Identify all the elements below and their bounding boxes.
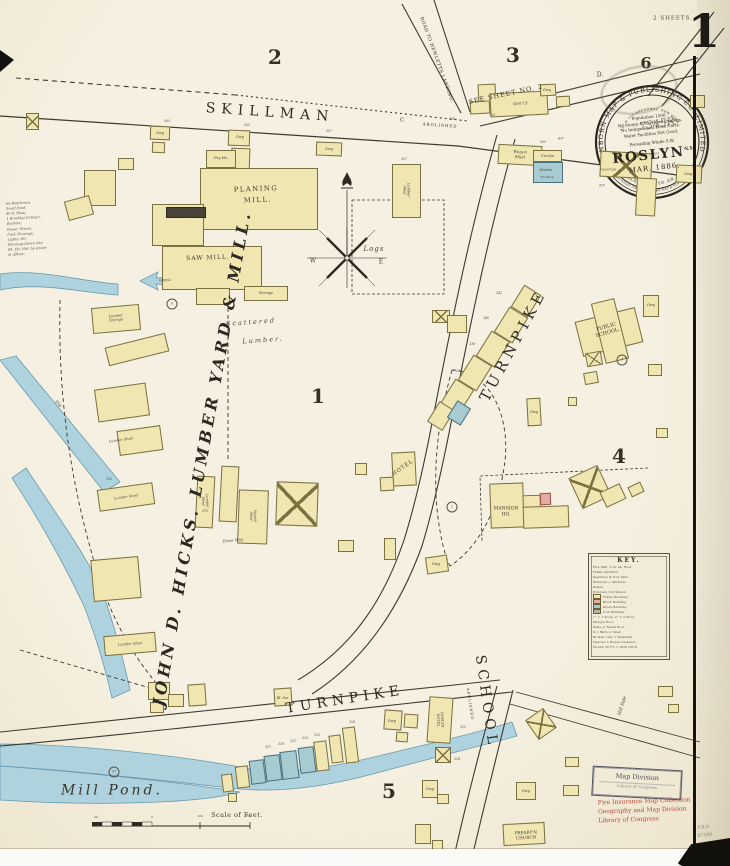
key-title: KEY. bbox=[593, 557, 665, 564]
map-label: Tin Shop bbox=[540, 176, 554, 180]
map-label: 336 bbox=[456, 370, 462, 374]
map-label: HOTEL bbox=[391, 458, 415, 477]
map-label: 321 bbox=[290, 740, 296, 744]
map-label: PLANING bbox=[234, 184, 279, 194]
key-row-text: Figures = House Numbers bbox=[593, 640, 636, 644]
map-label: 150 bbox=[245, 815, 251, 819]
map-label: 319 bbox=[278, 743, 284, 747]
map-label: Lumber Storage bbox=[109, 313, 124, 323]
map-label: Wagon Shed bbox=[513, 150, 527, 160]
lot-number: 4 bbox=[617, 355, 628, 366]
street-label: ABOLISHED bbox=[466, 688, 475, 720]
map-label: Wagon Shed bbox=[249, 510, 258, 522]
key-color-chip bbox=[593, 609, 601, 614]
map-label: Mill Pond. bbox=[61, 783, 163, 800]
street-label: SKILLMAN bbox=[205, 100, 335, 126]
map-label: Dwg bbox=[522, 789, 530, 793]
section-number: 1 bbox=[311, 384, 325, 408]
map-label: Lumber Shed bbox=[200, 494, 209, 508]
paper-right-edge bbox=[697, 0, 730, 866]
key-row-text: Shingle Roof bbox=[593, 620, 614, 624]
section-number: 4 bbox=[612, 444, 626, 468]
map-label: Bl. Sm. bbox=[277, 696, 289, 700]
map-label: 323 bbox=[302, 737, 308, 741]
stamp-center-text: Population 1500.No Steam & No Hand Engin… bbox=[603, 109, 701, 176]
map-label: 310 bbox=[202, 510, 208, 514]
section-number: 5 bbox=[382, 779, 396, 803]
map-label: Dwg bbox=[684, 172, 692, 176]
map-label: Scale of Feet. bbox=[211, 812, 263, 820]
map-label: D. bbox=[597, 71, 604, 78]
key-legend: KEY. Fire Wall, 6 in. ab. RoofFrame Part… bbox=[588, 553, 670, 660]
street-label: TURNPIKE bbox=[476, 285, 551, 404]
map-label: Gen'l S. bbox=[513, 101, 529, 107]
map-label: Storage bbox=[259, 291, 273, 295]
map-label: 60' bbox=[558, 137, 564, 142]
map-label: Dwg bbox=[530, 410, 538, 414]
lot-number: 9 bbox=[167, 299, 178, 310]
map-label: SAW MILL. bbox=[186, 254, 230, 263]
map-label: Dwg bbox=[156, 131, 164, 135]
map-label: ROSLYN HOTEL bbox=[435, 712, 444, 728]
map-label: 309 bbox=[540, 141, 546, 145]
key-row-text: 1° = 1 Story, 2° = 2 Story bbox=[593, 615, 635, 619]
map-label: 318 bbox=[449, 118, 455, 122]
map-label: 100 bbox=[197, 815, 203, 819]
map-label: 50 bbox=[94, 816, 98, 820]
key-row-text: Broken Line = Verandah bbox=[593, 635, 632, 639]
map-label: Dwg bbox=[647, 303, 655, 307]
map-label: 326 bbox=[349, 721, 355, 725]
map-label: 317 bbox=[265, 746, 271, 750]
section-number: 2 bbox=[268, 45, 282, 69]
map-label: Lumber Shed bbox=[114, 493, 138, 500]
sheet-number: 1 bbox=[688, 4, 728, 58]
map-label: E bbox=[379, 258, 383, 265]
map-label: 305 bbox=[244, 124, 250, 128]
map-division-subtext: Library of Congress bbox=[599, 781, 675, 791]
map-label: Drive Way bbox=[222, 538, 243, 545]
map-label: 340 bbox=[483, 317, 489, 321]
map-label: No Watchman, Small Pond, 40 ft. Hose, 1 … bbox=[6, 198, 79, 258]
key-row-text: Windows + Shutters bbox=[593, 580, 626, 584]
lot-number: 2 bbox=[447, 502, 458, 513]
map-label: SPRING bbox=[159, 279, 172, 283]
key-row-text: Stone Building bbox=[603, 605, 627, 609]
key-row-text: Iron Building bbox=[603, 610, 624, 614]
key-row-text: Openings & Iron Shrs. bbox=[593, 575, 629, 579]
scan-bottom-edge bbox=[0, 849, 730, 866]
map-label: Sngd. bbox=[180, 213, 193, 219]
key-row-text: X = Barn or Shed bbox=[593, 630, 621, 634]
map-label: 303 bbox=[164, 120, 170, 124]
key-row: SCALE 50 FT. = ONE INCH bbox=[593, 644, 665, 649]
map-label: Dwg bbox=[426, 787, 434, 791]
map-label: 0 bbox=[151, 816, 153, 820]
key-rows: Fire Wall, 6 in. ab. RoofFrame Partition… bbox=[593, 564, 665, 649]
map-label: Hill Side bbox=[617, 696, 628, 716]
key-row-text: Frame Building bbox=[603, 595, 628, 599]
map-label: 338 bbox=[469, 343, 475, 347]
map-label: PUBLIC SCHOOL. bbox=[593, 321, 620, 339]
map-label: Dwg bbox=[388, 719, 396, 723]
map-label: 2 SHEETS. bbox=[653, 16, 693, 23]
key-row-text: Stable bbox=[593, 585, 603, 589]
street-label: TURNPIKE bbox=[285, 682, 406, 717]
map-label: Dwg bbox=[325, 147, 333, 151]
map-label: MILL. bbox=[244, 195, 273, 204]
street-label: ROAD TO HEWLETTS LANDING. bbox=[418, 16, 454, 103]
map-label: Lumber Shed bbox=[109, 436, 133, 443]
map-label: Logs bbox=[364, 245, 385, 253]
map-label: Crocke. bbox=[541, 154, 555, 158]
map-label: Dwg bbox=[432, 562, 440, 566]
map-label: W bbox=[310, 257, 316, 264]
map-label: Dry Ho. bbox=[214, 156, 228, 160]
map-label: 314 bbox=[454, 758, 460, 762]
map-label: 50' bbox=[599, 184, 605, 189]
map-label: Hardw. bbox=[539, 168, 552, 172]
map-label: Scattered bbox=[226, 317, 277, 328]
key-row-text: Windows Not Shown bbox=[593, 590, 626, 594]
map-label: JOHN D. HICKS. LUMBER YARD & MILL. bbox=[149, 208, 255, 708]
key-row-text: Brick Building bbox=[603, 600, 626, 604]
sheet-border-line bbox=[693, 56, 696, 866]
map-label: 357 bbox=[401, 158, 407, 162]
map-label: Dwg bbox=[543, 88, 551, 92]
map-label: Lumber Shed bbox=[118, 641, 142, 647]
map-label: C bbox=[400, 118, 404, 125]
key-row-text: Slate or Metal Roof bbox=[593, 625, 624, 629]
key-row-text: Fire Wall, 6 in. ab. Roof bbox=[593, 565, 631, 569]
key-row-text: SCALE 50 FT. = ONE INCH bbox=[593, 645, 637, 649]
map-label: Slip bbox=[54, 399, 63, 408]
map-label: Dwg bbox=[236, 135, 244, 139]
map-label: SEE SHEET NO. 2 bbox=[468, 83, 544, 106]
map-label: 342 bbox=[496, 292, 502, 296]
map-label: MANSION HO. bbox=[494, 507, 519, 518]
map-label: 307 bbox=[326, 130, 332, 134]
map-label: 325 bbox=[314, 734, 320, 738]
section-number: 3 bbox=[506, 43, 520, 67]
map-label: 312 bbox=[460, 726, 466, 730]
lot-number: 97 bbox=[109, 767, 120, 778]
key-row-text: Frame Partition bbox=[593, 570, 618, 574]
map-label: Lumber Shed bbox=[402, 183, 411, 197]
sanborn-map-sheet: SANBORN MAP & PUBLISHING CO. LIMITED 117… bbox=[0, 0, 730, 866]
street-label: ABOLISHED bbox=[422, 122, 457, 129]
map-label: 353 bbox=[106, 478, 112, 482]
map-label: Lumber. bbox=[242, 336, 284, 347]
map-label: 320 bbox=[489, 114, 495, 118]
map-label: PRESBY'N CHURCH bbox=[515, 829, 538, 840]
street-label: SCHOOL bbox=[471, 654, 501, 750]
